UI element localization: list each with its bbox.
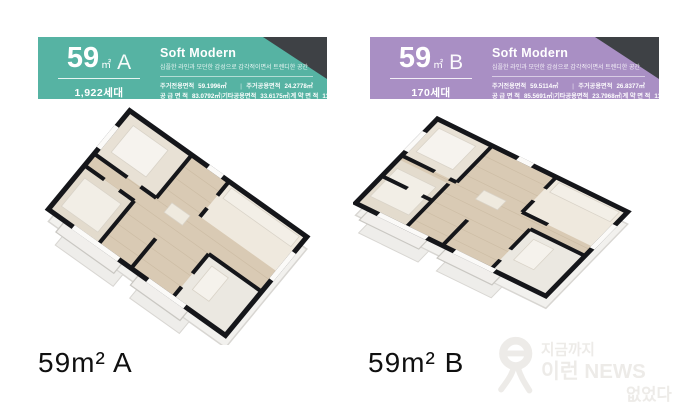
unit-a-caption: 59m² A	[38, 347, 133, 379]
area-specs: 주거전용면적 59.1996㎡ | 주거공용면적 24.2778㎡ 공 급 면 …	[160, 82, 313, 99]
unit-a-headline: 59 ㎡ A	[52, 44, 146, 73]
spec-value: 24.2778㎡	[284, 82, 313, 92]
unit-size-unit: ㎡	[433, 61, 443, 71]
spec-supply-area: 공 급 면 적 83.0792㎡	[160, 92, 221, 99]
floorplan-a-illustration	[25, 100, 330, 345]
spec-label: 주거전용면적	[492, 82, 526, 92]
unit-b-caption: 59m² B	[368, 347, 464, 379]
watermark-line1: 지금까지	[541, 341, 595, 358]
spec-contract-area: 계 약 면 적 117.1947㎡	[290, 92, 327, 99]
unit-type-letter: B	[449, 52, 463, 73]
spec-value: 59.5114㎡	[530, 82, 558, 92]
concept-title: Soft Modern	[160, 46, 313, 60]
spec-label: 주거전용면적	[160, 82, 194, 92]
households-count: 1,922세대	[52, 85, 146, 99]
unit-size: 59	[399, 44, 431, 73]
unit-b-title-block: 59 ㎡ B 170세대	[384, 44, 478, 99]
unit-a-concept-block: Soft Modern 심플한 라인과 모던한 감성으로 감각적이면서 트렌디한…	[160, 46, 313, 99]
spec-common-area: 주거공용면적 26.8377㎡	[578, 82, 645, 92]
unit-size-unit: ㎡	[101, 61, 111, 71]
spec-divider: |	[568, 82, 579, 92]
unit-a-header: 59 ㎡ A 1,922세대 Soft Modern 심플한 라인과 모던한 감…	[38, 37, 327, 99]
header-divider-line	[390, 78, 472, 79]
spec-label: 기타공용면적	[222, 92, 256, 99]
spec-other-common-area: 기타공용면적 33.6175㎡	[222, 92, 289, 99]
unit-b-headline: 59 ㎡ B	[384, 44, 478, 73]
watermark-line3: 없었다	[626, 384, 672, 404]
spec-value: 59.1996㎡	[198, 82, 227, 92]
spec-divider: |	[236, 82, 247, 92]
concept-subtitle: 심플한 라인과 모던한 감성으로 감각적이면서 트렌디한 공간	[160, 62, 313, 71]
floorplan-b-illustration	[353, 95, 658, 340]
unit-a-floorplan-render	[25, 100, 330, 345]
unit-a-title-block: 59 ㎡ A 1,922세대	[52, 44, 146, 99]
news-watermark-logo: 지금까지 이런 NEWS 없었다	[490, 332, 676, 410]
spec-value: 26.8377㎡	[616, 82, 645, 92]
spec-label: 주거공용면적	[246, 82, 280, 92]
news-watermark: 지금까지 이런 NEWS 없었다	[490, 332, 676, 410]
concept-divider-line	[160, 76, 313, 77]
concept-divider-line	[492, 76, 645, 77]
spec-label: 주거공용면적	[578, 82, 612, 92]
spec-label: 공 급 면 적	[160, 92, 188, 99]
unit-type-letter: A	[117, 52, 131, 73]
unit-b-concept-block: Soft Modern 심플한 라인과 모던한 감성으로 감각적이면서 트렌디한…	[492, 46, 645, 99]
spec-exclusive-area: 주거전용면적 59.1996㎡	[160, 82, 236, 92]
concept-title: Soft Modern	[492, 46, 645, 60]
spec-label: 계 약 면 적	[290, 92, 318, 99]
spec-exclusive-area: 주거전용면적 59.5114㎡	[492, 82, 568, 92]
spec-value: 117.1947㎡	[322, 92, 327, 99]
unit-b-header: 59 ㎡ B 170세대 Soft Modern 심플한 라인과 모던한 감성으…	[370, 37, 659, 99]
unit-b-floorplan-render	[353, 95, 658, 340]
spec-row-1: 주거전용면적 59.1996㎡ | 주거공용면적 24.2778㎡	[160, 82, 313, 92]
spec-common-area: 주거공용면적 24.2778㎡	[246, 82, 313, 92]
header-divider-line	[58, 78, 140, 79]
spec-value: 83.0792㎡	[192, 92, 221, 99]
spec-row-2: 공 급 면 적 83.0792㎡ | 기타공용면적 33.6175㎡ | 계 약…	[160, 92, 313, 99]
watermark-line2: 이런 NEWS	[541, 360, 646, 383]
e-person-icon	[501, 341, 529, 391]
spec-row-1: 주거전용면적 59.5114㎡ | 주거공용면적 26.8377㎡	[492, 82, 645, 92]
unit-size: 59	[67, 44, 99, 73]
concept-subtitle: 심플한 라인과 모던한 감성으로 감각적이면서 트렌디한 공간	[492, 62, 645, 71]
spec-value: 33.6175㎡	[260, 92, 289, 99]
